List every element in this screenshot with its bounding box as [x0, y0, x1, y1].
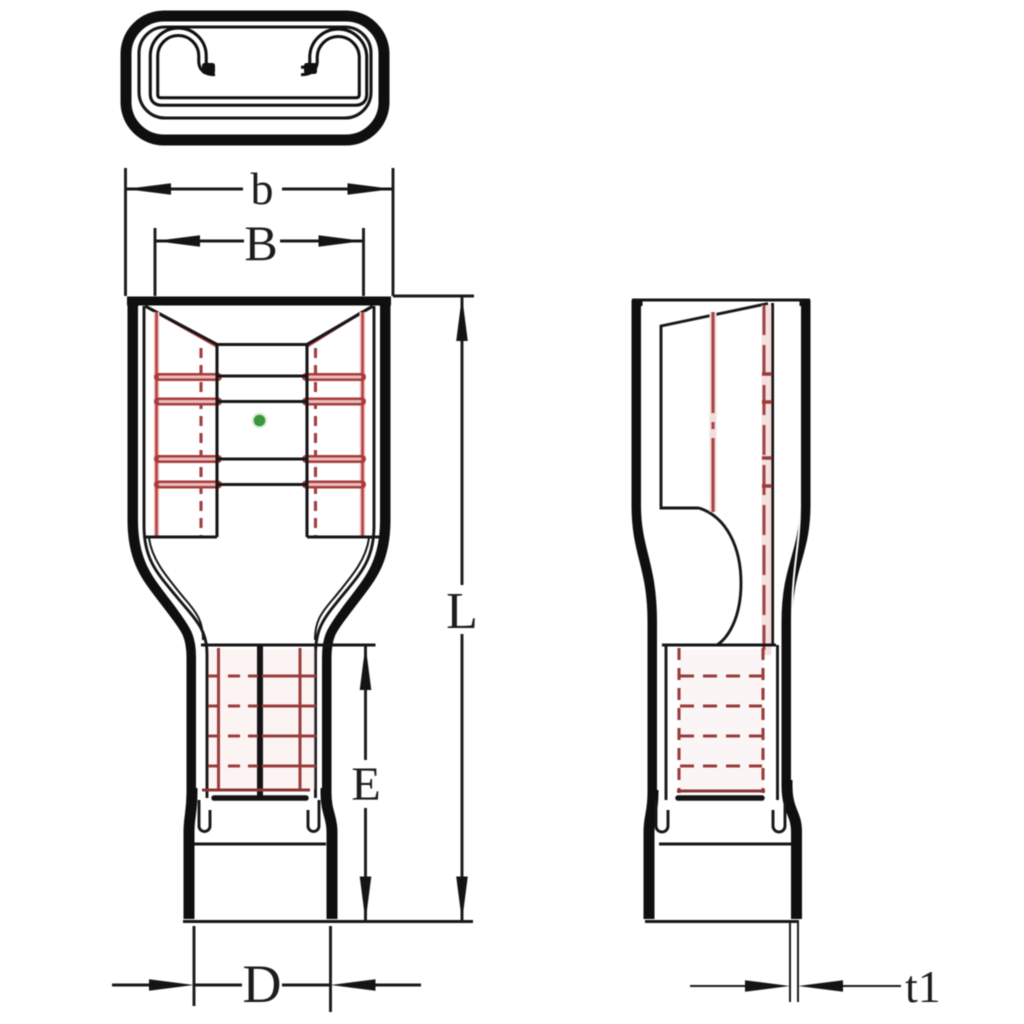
svg-text:L: L [446, 583, 478, 640]
svg-text:b: b [251, 163, 274, 214]
svg-text:D: D [243, 954, 282, 1014]
svg-text:E: E [351, 758, 380, 811]
svg-text:t1: t1 [905, 961, 941, 1012]
svg-text:B: B [244, 215, 277, 271]
